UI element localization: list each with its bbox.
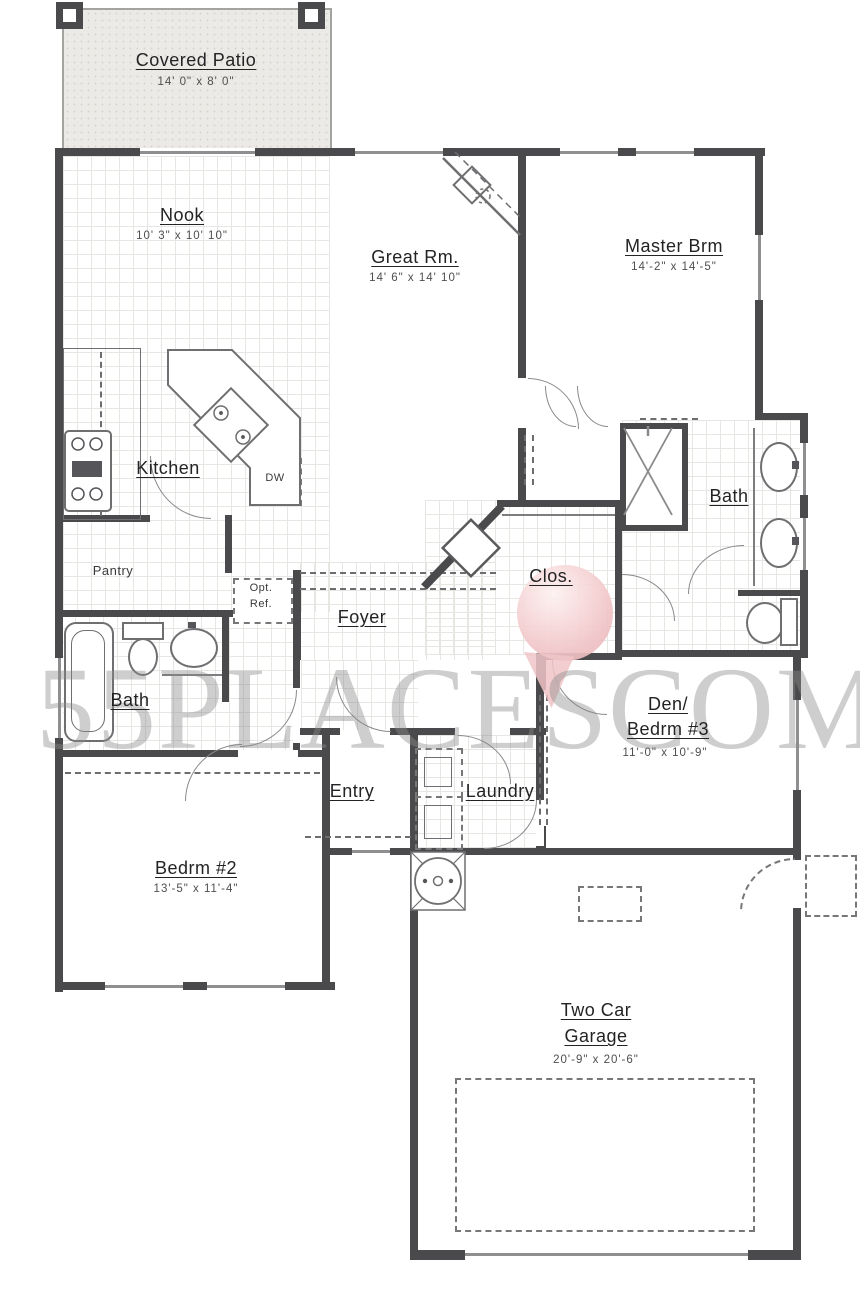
label-foyer: Foyer (338, 607, 387, 628)
floor-plan: 55PLACES COM Covered Patio 14' 0" x 8' 0… (0, 0, 860, 1300)
window (207, 985, 285, 988)
window (758, 235, 761, 300)
window (140, 151, 255, 154)
label-covered-patio: Covered Patio (136, 50, 257, 71)
water-heater (411, 852, 465, 910)
label-opt-ref-1: Opt. (250, 582, 273, 594)
dims-nook: 10' 3" x 10' 10" (136, 230, 228, 242)
window (58, 658, 61, 738)
label-den-1: Den/ (648, 694, 688, 715)
label-dishwasher: DW (265, 472, 284, 484)
label-garage-2: Garage (564, 1026, 627, 1047)
label-den-2: Bedrm #3 (627, 719, 709, 740)
label-bedroom2: Bedrm #2 (155, 858, 237, 879)
label-laundry: Laundry (466, 781, 535, 802)
window (355, 151, 443, 154)
label-nook: Nook (160, 205, 204, 226)
window (352, 850, 390, 853)
label-great-room: Great Rm. (371, 247, 459, 268)
dims-garage: 20'-9" x 20'-6" (553, 1054, 639, 1066)
window (636, 151, 694, 154)
label-closet: Clos. (529, 566, 573, 587)
window (105, 985, 183, 988)
window (560, 151, 618, 154)
window (796, 700, 799, 790)
garage-door-threshold (465, 1253, 748, 1256)
label-pantry: Pantry (93, 563, 134, 578)
fixtures-svg (0, 0, 860, 1300)
label-master-bath: Bath (709, 486, 748, 507)
label-kitchen: Kitchen (136, 458, 200, 479)
dims-bedroom2: 13'-5" x 11'-4" (154, 883, 239, 895)
closet-door-panel (443, 520, 500, 577)
range-burners (72, 438, 102, 500)
label-garage-1: Two Car (561, 1000, 632, 1021)
window (803, 443, 806, 495)
label-bath2: Bath (110, 690, 149, 711)
label-master: Master Brm (625, 236, 723, 257)
shower-detail (624, 426, 672, 515)
window (803, 518, 806, 570)
fireplace-icon (443, 152, 522, 235)
dims-master: 14'-2" x 14'-5" (631, 261, 717, 273)
label-entry: Entry (330, 781, 375, 802)
label-opt-ref-2: Ref. (250, 598, 272, 610)
dims-covered-patio: 14' 0" x 8' 0" (157, 76, 234, 88)
dims-den: 11'-0" x 10'-9" (623, 747, 708, 759)
dims-great-room: 14' 6" x 14' 10" (369, 272, 461, 284)
